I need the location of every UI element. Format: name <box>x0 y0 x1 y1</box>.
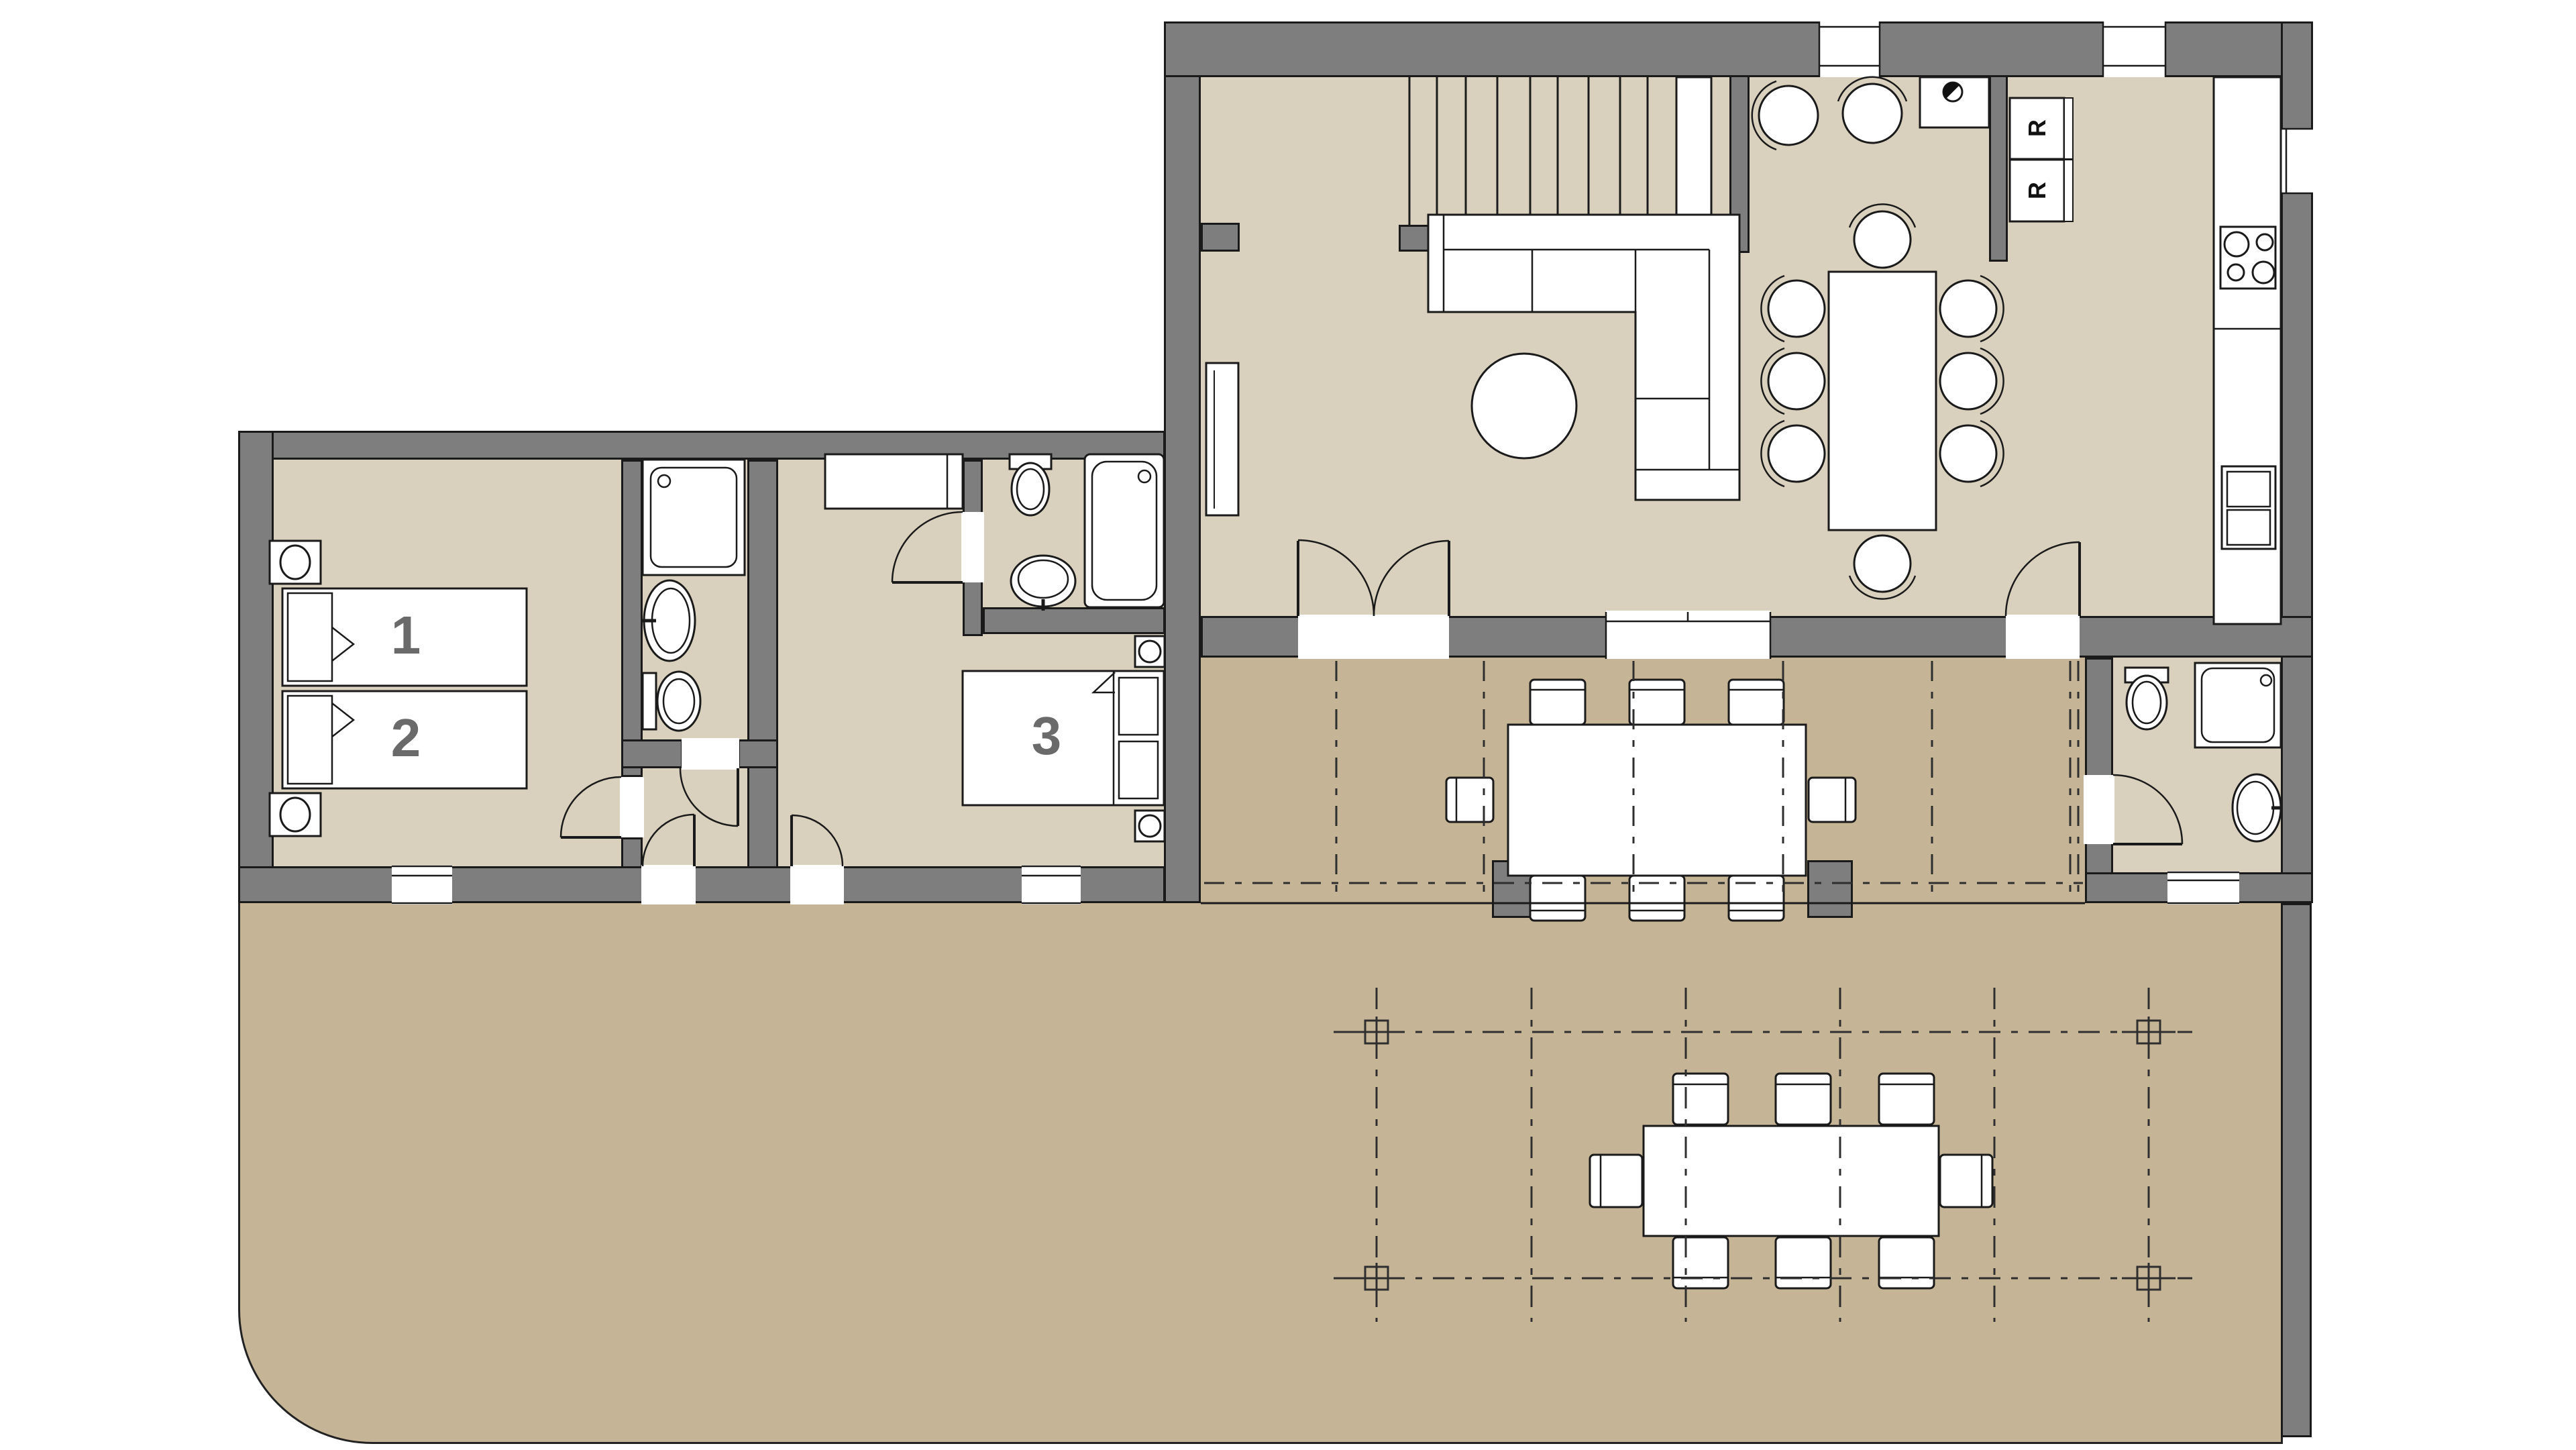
label-layer: 1 2 3 R R <box>0 0 2576 1450</box>
bed-label-2: 2 <box>391 711 421 765</box>
bed-label-1: 1 <box>391 609 421 662</box>
bed-label-3: 3 <box>1032 709 1062 763</box>
refrigerator-label-bottom: R <box>2025 182 2049 199</box>
refrigerator-label-top: R <box>2025 119 2049 137</box>
floor-plan: 1 2 3 R R <box>0 0 2576 1450</box>
